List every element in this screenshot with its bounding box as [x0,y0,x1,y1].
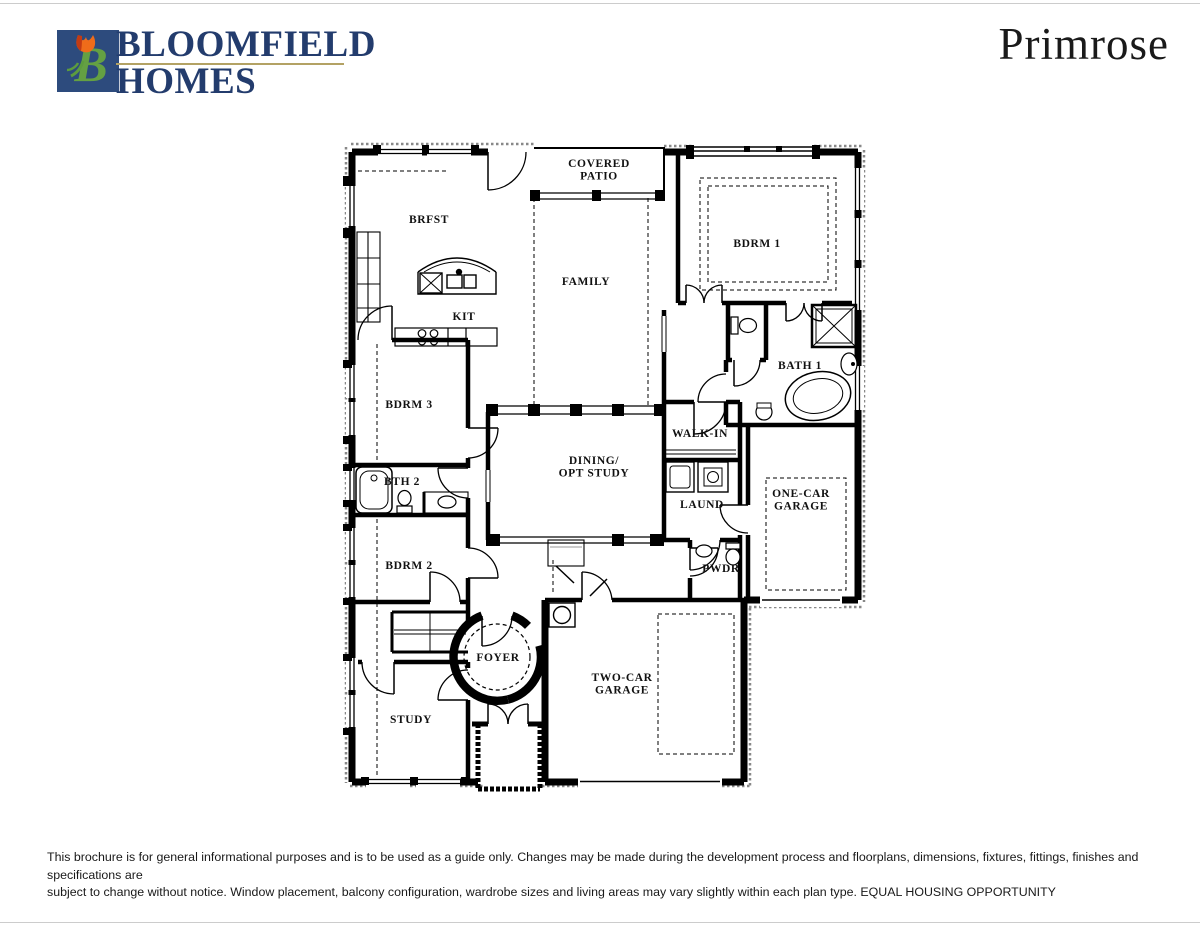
floor-plan-drawing: COVEREDPATIOBRFSTFAMILYBDRM 1KITBDRM 3BA… [0,0,1200,927]
room-label-laund: LAUND [680,499,724,511]
room-label-bdrm-1: BDRM 1 [733,238,780,250]
room-label-study: STUDY [390,714,432,726]
right-wall-windows [852,168,864,410]
washer-dryer-icon [666,462,728,492]
front-porch-walls [472,724,548,789]
room-label-covered-patio: COVEREDPATIO [568,158,630,183]
pedestal-sink-icon [756,403,772,420]
room-label-one-car-garage: ONE-CARGARAGE [772,488,830,513]
room-label-two-car-garage: TWO-CARGARAGE [591,672,652,697]
front-door-right [508,704,528,724]
disclaimer-line-2: subject to change without notice. Window… [47,884,1165,902]
disclaimer: This brochure is for general information… [47,849,1165,902]
kitchen-sink-icon [447,275,462,288]
room-label-bdrm-3: BDRM 3 [385,399,432,411]
tray-ceiling-outline [700,178,836,290]
room-label-walk-in: WALK-IN [672,428,728,440]
toilet-icon [397,491,412,514]
pantry-shelves [357,232,380,322]
cooktop-icon [418,330,438,345]
water-heater-icon [549,603,575,627]
kitchen-island-icon [418,258,496,294]
room-label-bdrm-2: BDRM 2 [385,560,432,572]
cased-openings [486,316,666,546]
kitchen-counter [395,328,497,346]
bth2-fixtures [356,467,468,513]
bdrm1-toilet-icon [731,317,757,334]
bathtub-icon [356,467,392,513]
bath1-sink-icon [841,353,857,375]
room-label-bth-2: BTH 2 [384,476,420,488]
room-label-pwdr: PWDR [702,563,740,575]
room-label-family: FAMILY [562,276,610,288]
room-label-foyer: FOYER [476,652,519,664]
powder-sink-icon [696,545,712,557]
front-door-left [488,704,508,724]
sink-icon [424,492,468,513]
walk-in-shelves [666,450,736,454]
garden-tub-icon [781,366,856,427]
room-label-bath-1: BATH 1 [778,360,822,372]
two-car-parking-outline [658,614,734,754]
room-label-kit: KIT [453,311,476,323]
room-labels: COVEREDPATIOBRFSTFAMILYBDRM 1KITBDRM 3BA… [384,158,830,726]
disclaimer-line-1: This brochure is for general information… [47,849,1165,884]
shower-icon [812,305,856,347]
room-label-brfst: BRFST [409,214,449,226]
room-label-dining-opt-study: DINING/OPT STUDY [559,455,630,480]
bdrm1-bay-window [686,145,820,159]
brochure-page: B BLOOMFIELD HOMES Primrose [0,0,1200,927]
fixtures [356,232,857,652]
